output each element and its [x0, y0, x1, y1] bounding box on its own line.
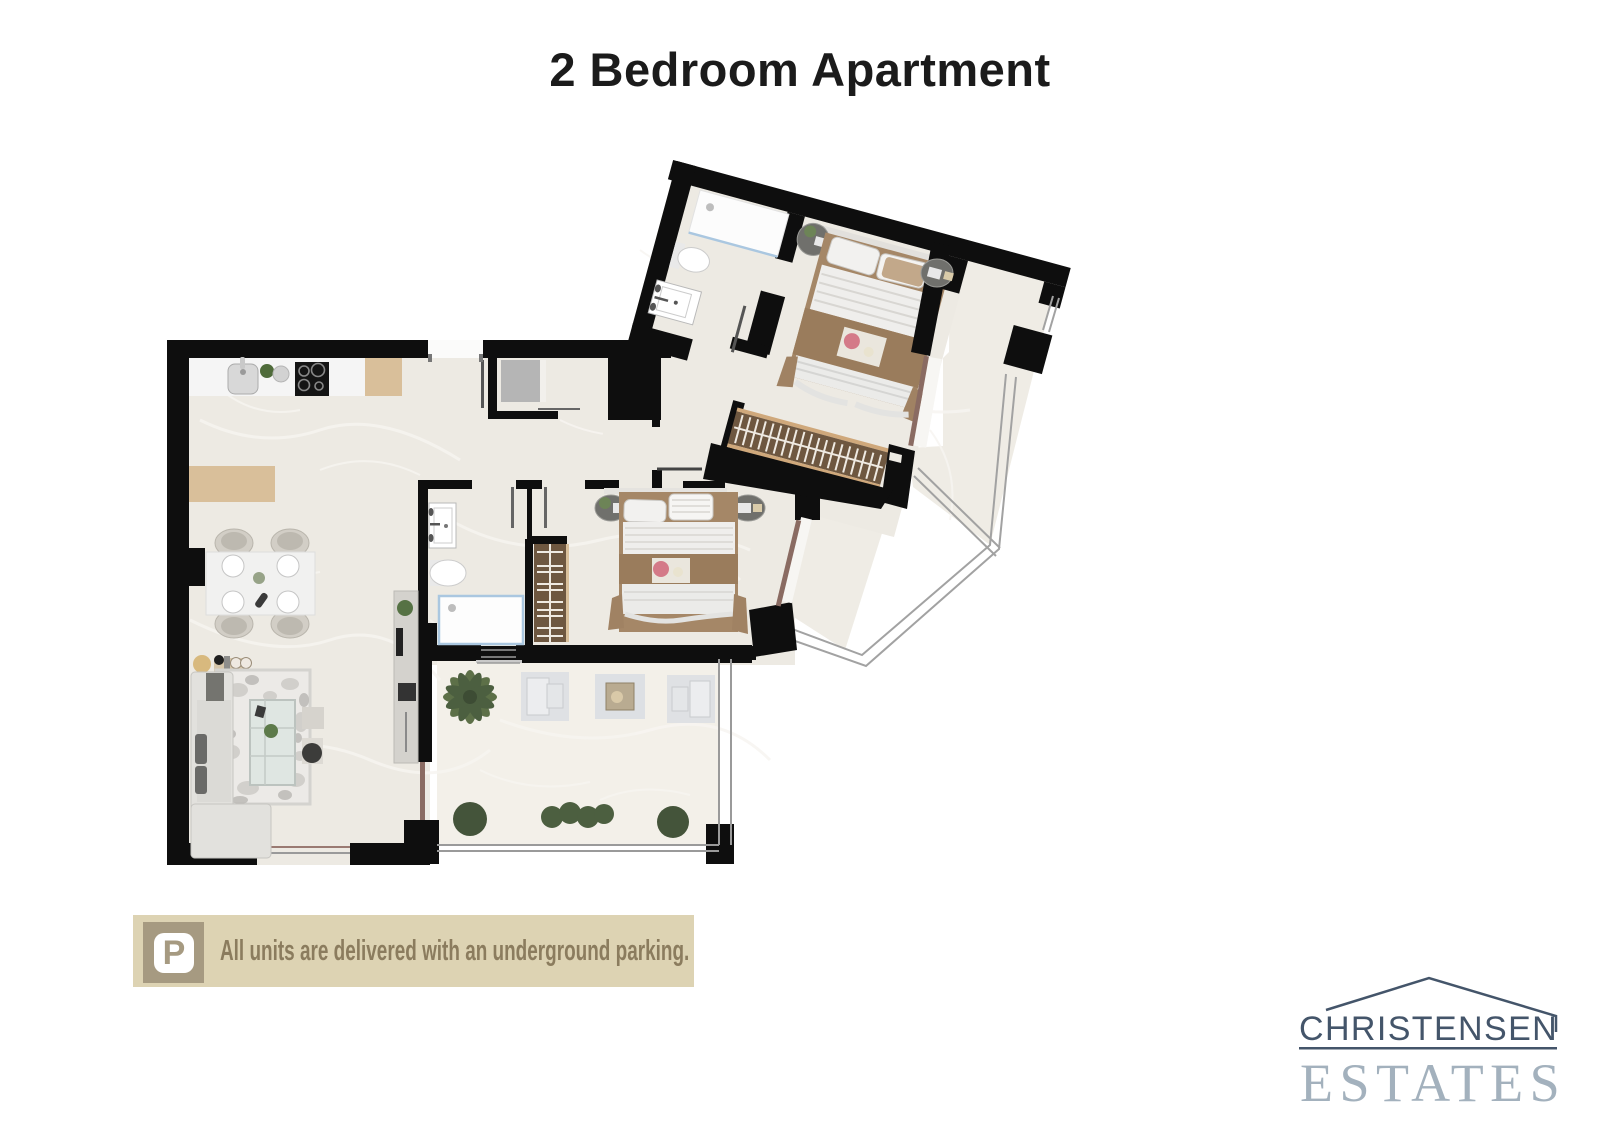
svg-text:ESTATES: ESTATES [1300, 1053, 1566, 1113]
svg-text:CHRISTENSEN: CHRISTENSEN [1299, 1010, 1558, 1048]
